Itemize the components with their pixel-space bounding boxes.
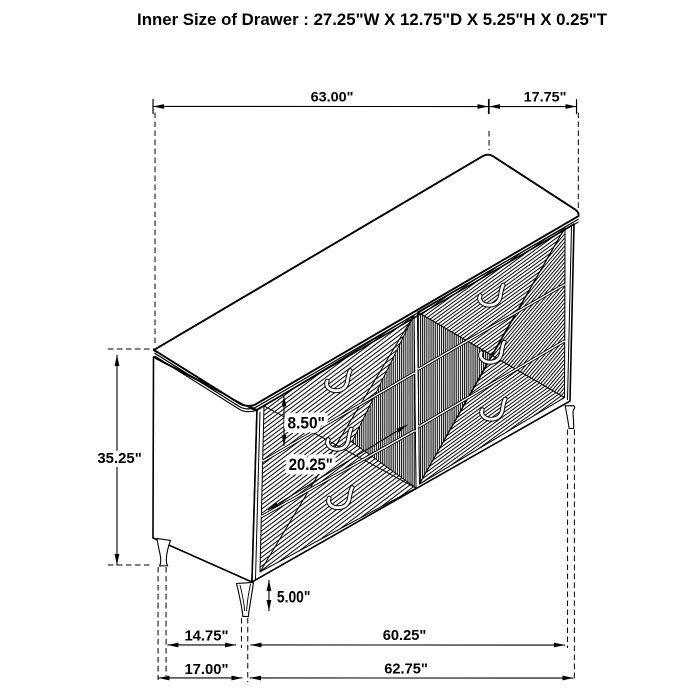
svg-text:20.25": 20.25" — [289, 455, 333, 474]
svg-text:Inner Size of Drawer : 27.25"W: Inner Size of Drawer : 27.25"W X 12.75"D… — [137, 11, 607, 29]
svg-text:17.75": 17.75" — [524, 89, 567, 105]
svg-text:5.00": 5.00" — [277, 587, 311, 606]
svg-text:17.00": 17.00" — [184, 661, 228, 678]
svg-text:35.25": 35.25" — [97, 450, 141, 467]
svg-text:14.75": 14.75" — [184, 627, 228, 644]
svg-text:63.00": 63.00" — [311, 89, 354, 105]
svg-text:62.75": 62.75" — [384, 661, 428, 678]
svg-text:60.25": 60.25" — [383, 627, 427, 644]
svg-text:8.50": 8.50" — [287, 413, 324, 432]
